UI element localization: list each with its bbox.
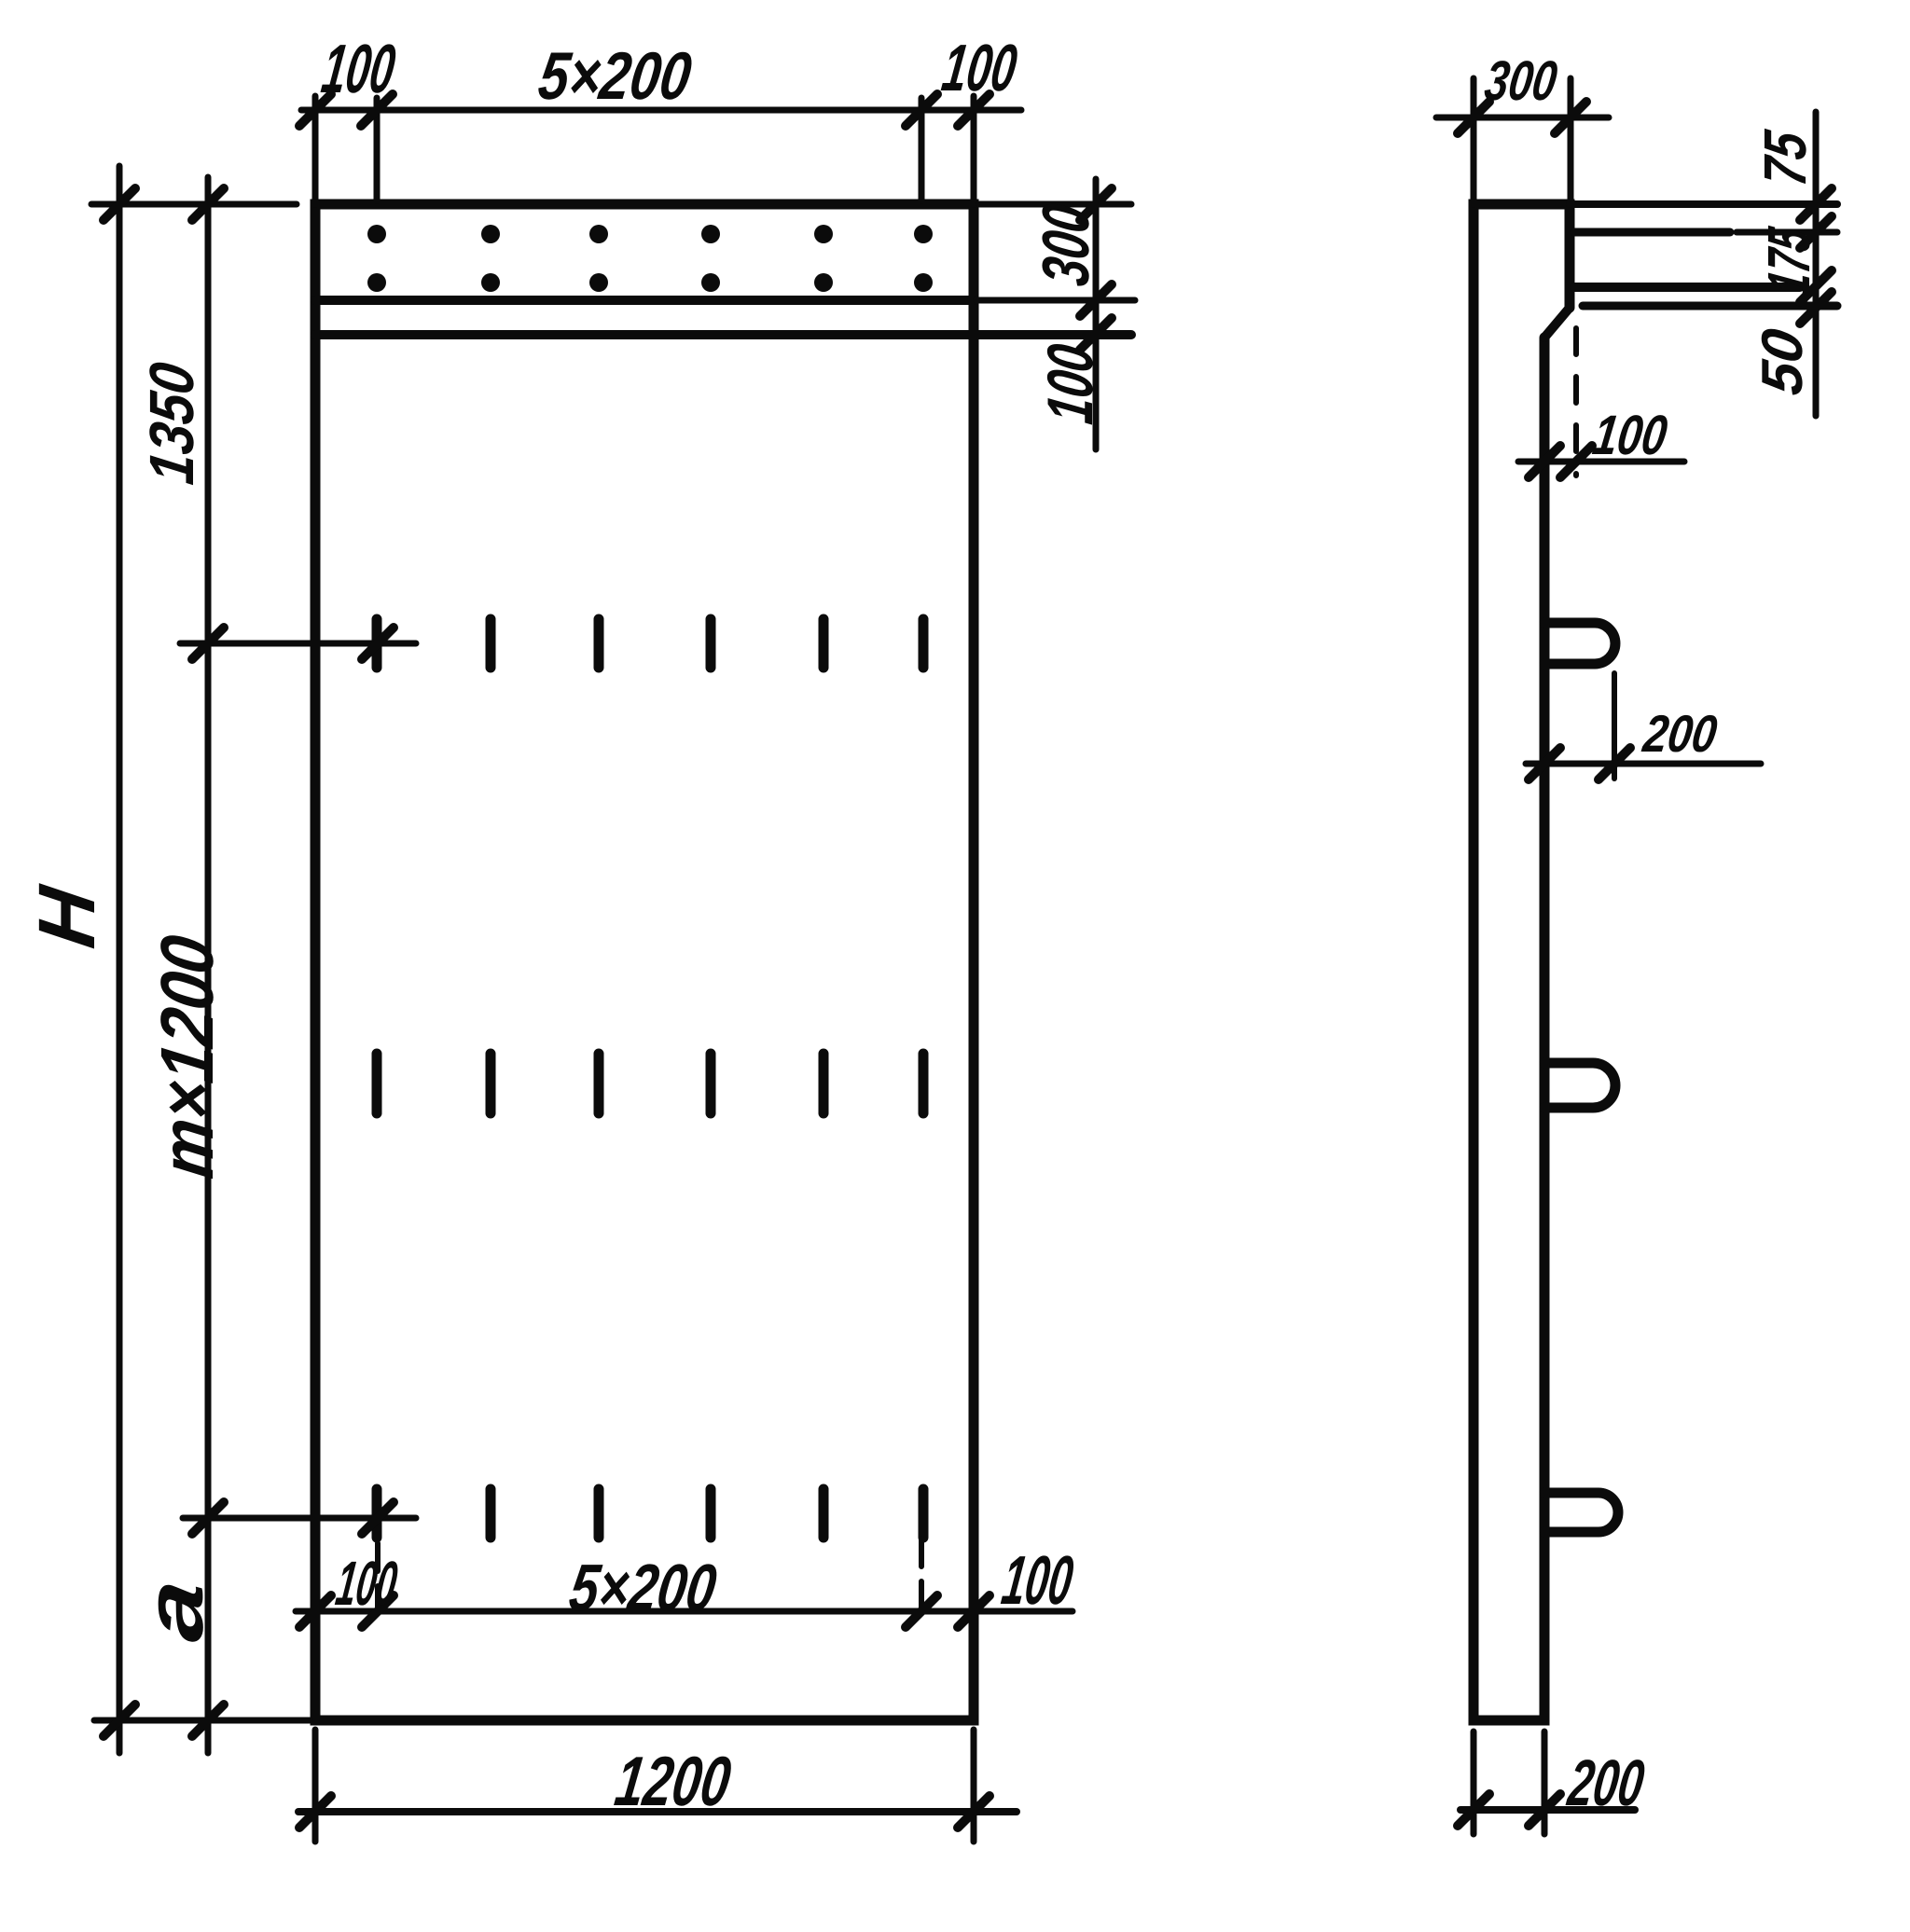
svg-text:75: 75 <box>1752 126 1819 189</box>
svg-text:100: 100 <box>332 1548 402 1619</box>
svg-text:200: 200 <box>1640 704 1721 763</box>
svg-text:175: 175 <box>1755 224 1822 298</box>
svg-text:50: 50 <box>1751 324 1815 398</box>
svg-text:5×200: 5×200 <box>565 1551 721 1625</box>
svg-text:100: 100 <box>317 31 399 107</box>
svg-text:300: 300 <box>1481 49 1561 112</box>
svg-text:100: 100 <box>938 31 1022 105</box>
svg-text:1200: 1200 <box>611 1743 736 1821</box>
svg-text:100: 100 <box>1589 405 1670 466</box>
svg-text:1350: 1350 <box>137 358 207 488</box>
svg-text:m×1200: m×1200 <box>145 931 228 1182</box>
svg-text:300: 300 <box>1030 200 1103 290</box>
svg-text:100: 100 <box>998 1542 1078 1620</box>
svg-text:5×200: 5×200 <box>534 38 696 113</box>
svg-text:100: 100 <box>1033 339 1106 427</box>
svg-text:200: 200 <box>1563 1746 1648 1819</box>
svg-text:a: a <box>128 1574 220 1647</box>
svg-text:H: H <box>22 881 112 953</box>
